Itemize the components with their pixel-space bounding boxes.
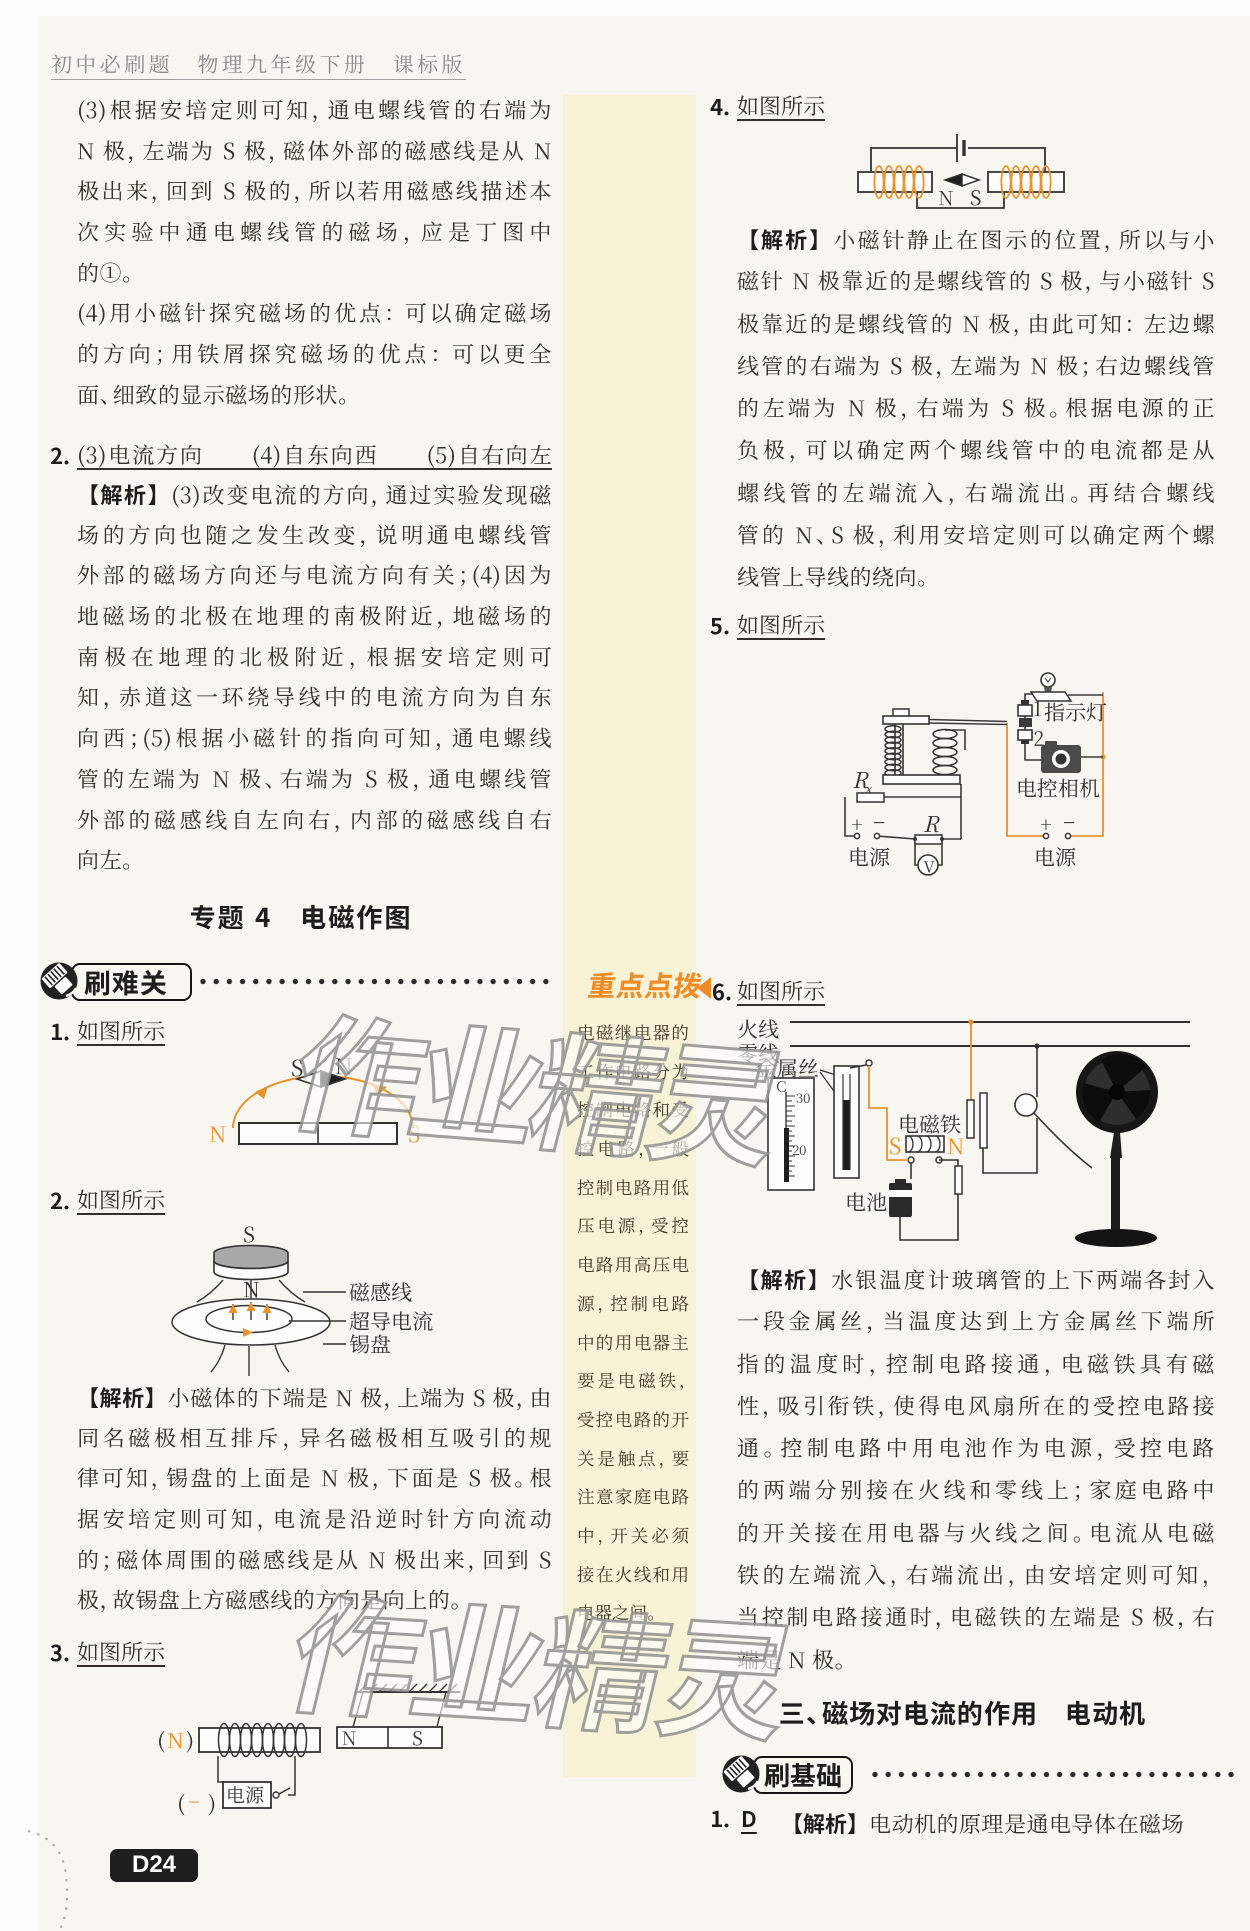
svg-text:−: − bbox=[188, 1786, 200, 1816]
svg-text:−: − bbox=[1063, 806, 1075, 837]
svg-text:电源: 电源 bbox=[226, 1781, 264, 1808]
svg-text:(: ( bbox=[157, 1725, 165, 1755]
svg-text:S: S bbox=[243, 1219, 255, 1249]
svg-text:N: N bbox=[209, 1118, 227, 1149]
svg-text:N: N bbox=[167, 1725, 184, 1755]
svg-text:指示灯: 指示灯 bbox=[1044, 697, 1107, 727]
svg-text:): ) bbox=[186, 1725, 194, 1755]
svg-text:1: 1 bbox=[1033, 693, 1042, 722]
svg-text:N: N bbox=[938, 182, 954, 211]
svg-text:电池: 电池 bbox=[845, 1187, 887, 1217]
svg-text:(: ( bbox=[177, 1788, 185, 1818]
svg-text:30: 30 bbox=[796, 1088, 810, 1107]
svg-text:电源: 电源 bbox=[848, 842, 890, 872]
svg-text:): ) bbox=[208, 1788, 216, 1818]
svg-text:−: − bbox=[873, 806, 885, 837]
svg-text:S: S bbox=[889, 1130, 901, 1161]
svg-text:S: S bbox=[970, 182, 981, 211]
svg-text:锡盘: 锡盘 bbox=[349, 1329, 391, 1359]
svg-text:N: N bbox=[947, 1130, 965, 1161]
svg-text:电源: 电源 bbox=[1034, 842, 1076, 872]
svg-text:磁感线: 磁感线 bbox=[349, 1277, 412, 1307]
svg-text:电控相机: 电控相机 bbox=[1016, 773, 1100, 803]
svg-text:V: V bbox=[923, 854, 935, 877]
